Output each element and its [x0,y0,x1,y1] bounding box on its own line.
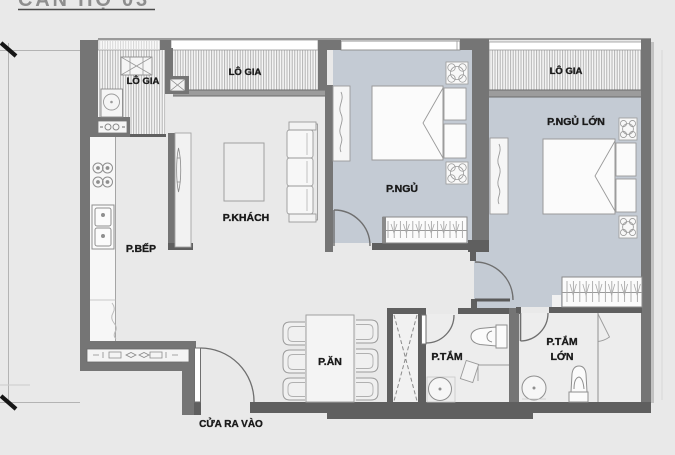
svg-text:P.NGỦ LỚN: P.NGỦ LỚN [547,115,605,128]
svg-text:P.BẾP: P.BẾP [126,242,156,255]
svg-text:P.TẮM: P.TẮM [431,350,463,363]
svg-text:CỬA RA VÀO: CỬA RA VÀO [199,417,263,430]
svg-text:LÔ GIA: LÔ GIA [229,66,262,78]
svg-text:P.KHÁCH: P.KHÁCH [223,211,269,224]
svg-text:P.TẮM: P.TẮM [546,335,578,348]
svg-text:P.NGỦ: P.NGỦ [386,182,418,195]
svg-text:LỚN: LỚN [551,350,574,363]
svg-text:LÔ GIA: LÔ GIA [550,65,583,77]
svg-text:3.60: 3.60 [0,215,3,235]
svg-text:LÔ GIA: LÔ GIA [127,75,160,87]
svg-text:P.ĂN: P.ĂN [318,355,342,368]
